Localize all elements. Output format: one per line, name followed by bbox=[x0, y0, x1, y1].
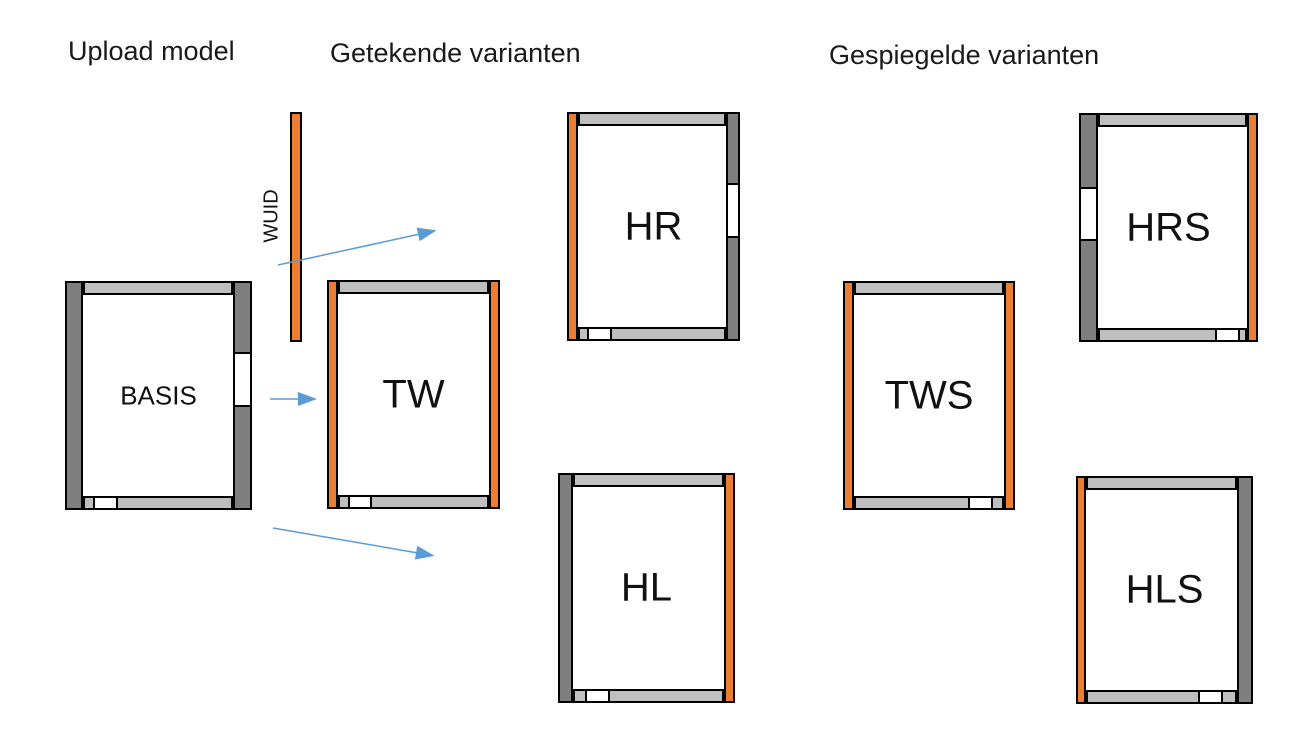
top-wall bbox=[573, 473, 724, 487]
top-wall bbox=[1098, 113, 1247, 127]
bottom-wall-door-gap bbox=[348, 495, 372, 509]
top-wall bbox=[338, 280, 489, 294]
floorplan-tws: TWS bbox=[843, 281, 1015, 510]
wuid-wall-bar bbox=[290, 112, 302, 342]
bottom-wall-door-gap bbox=[587, 327, 612, 341]
floorplan-label-hr: HR bbox=[567, 204, 740, 249]
diagram-canvas: Upload model Getekende varianten Gespieg… bbox=[0, 0, 1296, 752]
floorplan-label-hl: HL bbox=[558, 566, 735, 611]
bottom-wall-door-gap bbox=[1215, 328, 1240, 342]
floorplan-hr: HR bbox=[567, 112, 740, 341]
wuid-label: WUID bbox=[261, 189, 284, 242]
bottom-wall-door-gap bbox=[968, 496, 993, 510]
column-header-upload-model: Upload model bbox=[68, 36, 235, 67]
floorplan-basis: BASIS bbox=[65, 281, 252, 510]
floorplan-label-hls: HLS bbox=[1076, 568, 1253, 613]
top-wall bbox=[1086, 476, 1237, 490]
floorplan-label-hrs: HRS bbox=[1079, 205, 1258, 250]
bottom-wall-door-gap bbox=[93, 496, 118, 510]
top-wall bbox=[854, 281, 1004, 295]
variant-arrow-3 bbox=[273, 528, 418, 553]
floorplan-hrs: HRS bbox=[1079, 113, 1258, 342]
column-header-getekende-varianten: Getekende varianten bbox=[330, 38, 581, 69]
bottom-wall-door-gap bbox=[1198, 690, 1223, 704]
floorplan-label-tw: TW bbox=[327, 372, 500, 417]
floorplan-label-basis: BASIS bbox=[65, 380, 252, 411]
floorplan-label-tws: TWS bbox=[843, 373, 1015, 418]
top-wall bbox=[578, 112, 726, 126]
column-header-gespiegelde-varianten: Gespiegelde varianten bbox=[829, 40, 1099, 71]
bottom-wall-door-gap bbox=[585, 689, 610, 703]
floorplan-tw: TW bbox=[327, 280, 500, 509]
floorplan-hls: HLS bbox=[1076, 476, 1253, 704]
floorplan-hl: HL bbox=[558, 473, 735, 703]
top-wall bbox=[83, 281, 233, 295]
